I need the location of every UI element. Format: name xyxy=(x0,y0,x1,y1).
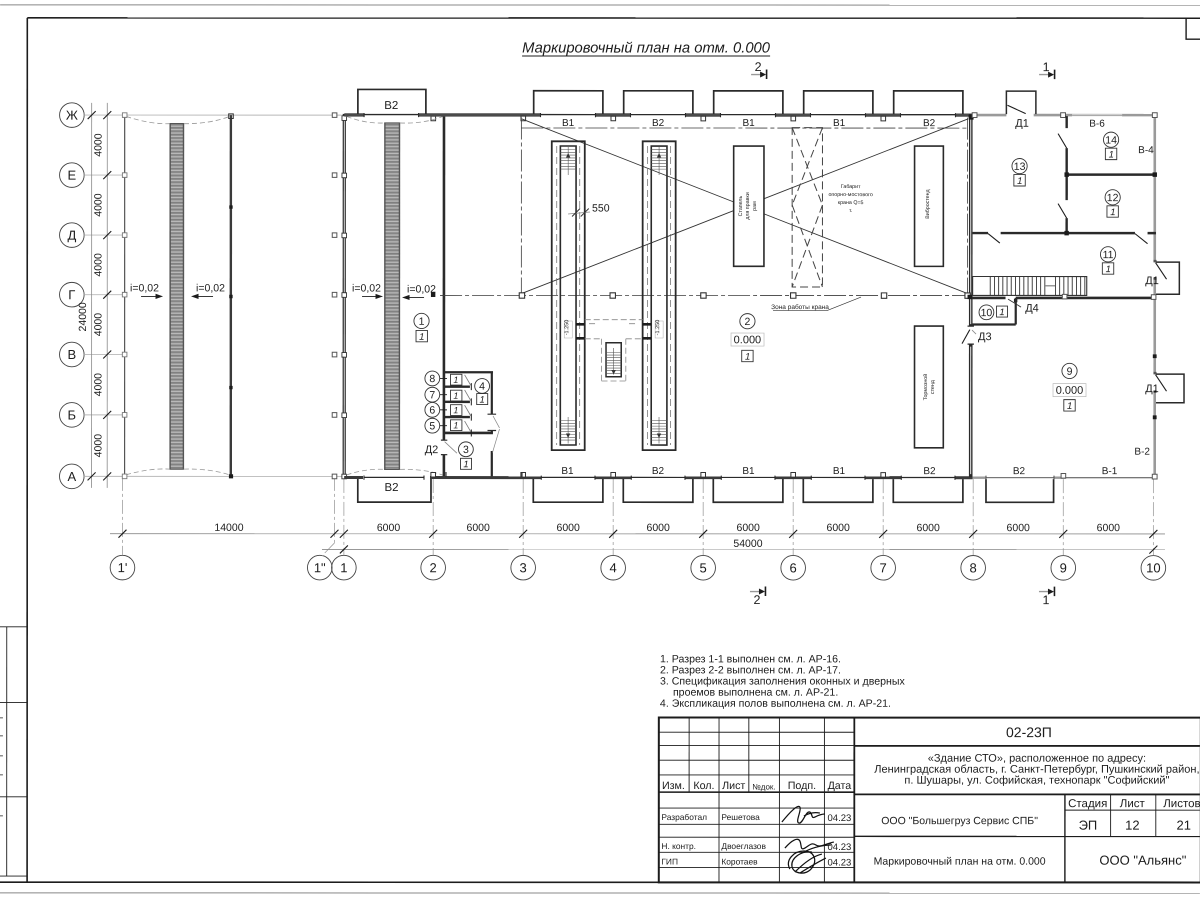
svg-text:ООО "Альянс": ООО "Альянс" xyxy=(1099,853,1186,868)
svg-text:1: 1 xyxy=(463,459,468,470)
svg-text:1: 1 xyxy=(453,391,458,401)
svg-text:5: 5 xyxy=(700,560,707,575)
svg-text:Маркировочный план на отм. 0.0: Маркировочный план на отм. 0.000 xyxy=(522,40,771,56)
svg-text:В2: В2 xyxy=(652,118,665,129)
svg-text:Лист: Лист xyxy=(722,780,745,792)
svg-text:6: 6 xyxy=(429,405,435,417)
svg-text:1: 1 xyxy=(1067,401,1072,412)
svg-text:В2: В2 xyxy=(652,466,665,477)
svg-text:1": 1" xyxy=(314,560,326,575)
svg-text:Стапель: Стапель xyxy=(738,195,744,216)
svg-text:Изм.: Изм. xyxy=(662,780,685,792)
svg-text:В-6: В-6 xyxy=(1089,119,1105,130)
svg-text:21: 21 xyxy=(1176,818,1190,833)
svg-text:6000: 6000 xyxy=(1097,522,1121,534)
svg-text:04.23: 04.23 xyxy=(828,858,852,869)
svg-text:0.000: 0.000 xyxy=(1056,385,1084,397)
svg-text:8: 8 xyxy=(429,373,435,385)
svg-text:Д4: Д4 xyxy=(1025,303,1039,315)
svg-text:8: 8 xyxy=(970,560,977,575)
svg-text:4. Экспликация полов выполнена: 4. Экспликация полов выполнена см. л. АР… xyxy=(660,698,891,710)
svg-text:п. Шушары, ул. Софийская, техн: п. Шушары, ул. Софийская, технопарк "Соф… xyxy=(904,775,1169,787)
svg-text:крана Q=5: крана Q=5 xyxy=(838,200,864,206)
svg-text:10: 10 xyxy=(981,307,993,319)
svg-text:ЭП: ЭП xyxy=(1079,818,1098,833)
svg-text:Е: Е xyxy=(68,168,77,183)
svg-text:54000: 54000 xyxy=(733,538,762,550)
svg-text:1: 1 xyxy=(453,405,458,415)
svg-text:6000: 6000 xyxy=(736,522,760,534)
svg-text:В1: В1 xyxy=(833,118,846,129)
svg-text:Коротаев: Коротаев xyxy=(721,857,758,867)
svg-text:Лист: Лист xyxy=(1120,798,1146,810)
svg-text:Зона работы крана: Зона работы крана xyxy=(771,303,829,311)
svg-text:12: 12 xyxy=(1107,192,1119,204)
svg-text:2: 2 xyxy=(745,316,751,328)
svg-text:1: 1 xyxy=(419,332,424,343)
svg-text:Маркировочный план на отм. 0.0: Маркировочный план на отм. 0.000 xyxy=(874,856,1046,868)
svg-text:В2: В2 xyxy=(923,466,936,477)
svg-text:Б: Б xyxy=(68,407,77,422)
svg-text:14: 14 xyxy=(1105,135,1117,147)
svg-text:опорно-мостового: опорно-мостового xyxy=(828,192,872,198)
svg-text:Ж: Ж xyxy=(66,108,78,123)
svg-text:02-23П: 02-23П xyxy=(1006,724,1052,740)
svg-text:5: 5 xyxy=(429,420,435,432)
svg-text:В2: В2 xyxy=(384,482,398,494)
svg-text:13: 13 xyxy=(1014,161,1026,173)
svg-text:В-2: В-2 xyxy=(1134,447,1150,458)
svg-text:№док.: №док. xyxy=(752,783,775,792)
svg-text:В1: В1 xyxy=(562,118,575,129)
svg-text:6000: 6000 xyxy=(646,522,670,534)
svg-text:т.: т. xyxy=(849,208,852,214)
svg-text:Дата: Дата xyxy=(828,780,852,792)
svg-text:В2: В2 xyxy=(923,118,936,129)
svg-text:стенд: стенд xyxy=(930,380,936,394)
svg-text:Подп.: Подп. xyxy=(788,780,816,792)
svg-text:1: 1 xyxy=(1106,264,1111,275)
svg-text:для правки: для правки xyxy=(745,192,751,219)
svg-text:Вибростенд: Вибростенд xyxy=(925,189,931,218)
svg-text:1': 1' xyxy=(118,560,128,575)
svg-text:Н. контр.: Н. контр. xyxy=(661,841,696,851)
svg-text:В: В xyxy=(67,347,76,362)
svg-text:В1: В1 xyxy=(742,466,755,477)
svg-text:4000: 4000 xyxy=(93,253,105,277)
svg-text:В1: В1 xyxy=(561,466,574,477)
svg-text:2: 2 xyxy=(430,560,437,575)
svg-text:ООО "Большегруз Сервис СПБ": ООО "Большегруз Сервис СПБ" xyxy=(881,815,1038,827)
svg-text:14000: 14000 xyxy=(214,522,243,534)
svg-text:4000: 4000 xyxy=(93,133,105,157)
svg-text:7: 7 xyxy=(429,389,435,401)
svg-text:Разработал: Разработал xyxy=(661,812,707,822)
svg-text:1: 1 xyxy=(999,307,1004,318)
svg-text:В-4: В-4 xyxy=(1138,145,1154,156)
svg-text:Д1: Д1 xyxy=(1145,383,1159,395)
svg-text:1: 1 xyxy=(453,420,458,430)
svg-text:В1: В1 xyxy=(742,118,755,129)
svg-text:0.000: 0.000 xyxy=(734,334,762,346)
svg-text:В-1: В-1 xyxy=(1102,466,1118,477)
svg-text:10: 10 xyxy=(1146,560,1160,575)
svg-text:4: 4 xyxy=(479,381,485,393)
svg-text:04.23: 04.23 xyxy=(828,813,852,824)
svg-text:Листов: Листов xyxy=(1163,798,1200,810)
svg-text:6000: 6000 xyxy=(916,522,940,534)
svg-text:7: 7 xyxy=(880,560,887,575)
svg-text:6: 6 xyxy=(790,560,797,575)
svg-text:Габарит: Габарит xyxy=(841,184,861,190)
svg-text:1: 1 xyxy=(419,316,425,328)
svg-text:4000: 4000 xyxy=(93,193,105,217)
svg-text:4000: 4000 xyxy=(93,373,105,397)
svg-text:1: 1 xyxy=(453,375,458,385)
svg-text:Двоеглазов: Двоеглазов xyxy=(721,841,766,851)
svg-text:Решетова: Решетова xyxy=(721,812,760,822)
svg-text:1: 1 xyxy=(480,395,485,406)
svg-text:Кол.: Кол. xyxy=(693,780,714,792)
svg-text:i=0,02: i=0,02 xyxy=(130,282,159,294)
svg-text:1: 1 xyxy=(1110,207,1115,218)
svg-text:i=0,02: i=0,02 xyxy=(352,282,381,294)
svg-text:4000: 4000 xyxy=(92,434,104,458)
svg-text:i=0,02: i=0,02 xyxy=(196,282,225,294)
svg-text:В2: В2 xyxy=(384,100,398,112)
svg-text:Стадия: Стадия xyxy=(1068,798,1107,810)
svg-text:А: А xyxy=(67,469,76,484)
svg-text:1: 1 xyxy=(340,560,347,575)
svg-text:рам: рам xyxy=(752,201,758,211)
svg-text:04.23: 04.23 xyxy=(828,842,852,853)
svg-text:1: 1 xyxy=(1109,150,1114,161)
svg-text:Г: Г xyxy=(68,287,75,302)
svg-text:4000: 4000 xyxy=(93,313,105,337)
svg-text:1: 1 xyxy=(1017,176,1022,187)
svg-text:9: 9 xyxy=(1060,560,1067,575)
svg-text:Тормозной: Тормозной xyxy=(922,374,929,401)
svg-text:1: 1 xyxy=(1042,593,1049,607)
svg-text:-1.250: -1.250 xyxy=(655,320,661,336)
svg-text:Д3: Д3 xyxy=(978,331,992,343)
svg-text:Д2: Д2 xyxy=(425,444,439,456)
svg-text:12: 12 xyxy=(1125,818,1139,833)
svg-text:6000: 6000 xyxy=(826,522,850,534)
svg-text:3: 3 xyxy=(463,444,469,456)
svg-text:В1: В1 xyxy=(833,466,846,477)
svg-text:550: 550 xyxy=(592,202,610,214)
svg-text:6000: 6000 xyxy=(377,522,401,534)
svg-text:Д1: Д1 xyxy=(1015,118,1029,130)
svg-text:11: 11 xyxy=(1103,249,1114,261)
svg-text:ГИП: ГИП xyxy=(661,857,678,867)
svg-text:2: 2 xyxy=(753,593,760,607)
svg-text:3: 3 xyxy=(520,560,527,575)
svg-text:4: 4 xyxy=(610,560,617,575)
svg-text:9: 9 xyxy=(1067,366,1073,378)
svg-text:В2: В2 xyxy=(1013,466,1026,477)
svg-text:1: 1 xyxy=(745,352,750,363)
svg-text:24000: 24000 xyxy=(77,302,89,331)
svg-text:6000: 6000 xyxy=(466,522,490,534)
svg-text:Д: Д xyxy=(67,228,76,243)
svg-text:6000: 6000 xyxy=(1007,522,1031,534)
svg-text:-1.250: -1.250 xyxy=(564,320,570,336)
svg-text:6000: 6000 xyxy=(556,522,580,534)
svg-text:Д1: Д1 xyxy=(1145,275,1159,287)
